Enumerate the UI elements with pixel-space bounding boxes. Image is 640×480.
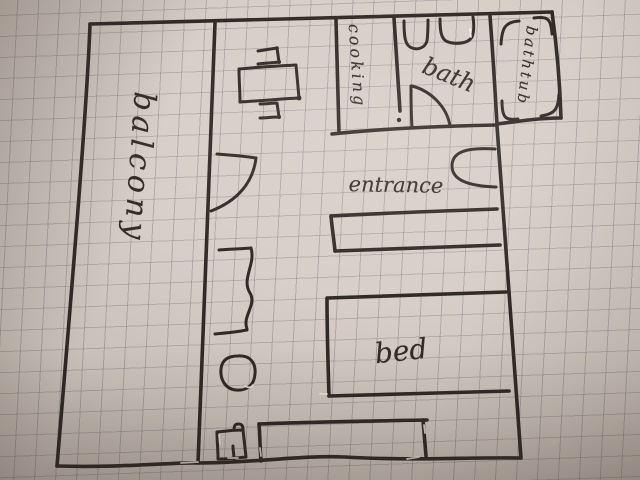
glint	[470, 29, 471, 37]
balcony-door-swing-arc	[211, 158, 256, 211]
glint	[260, 448, 261, 456]
small-square-tick	[233, 446, 234, 459]
floorplan-photo: balcony cooking bath bathtub entrance be…	[0, 0, 640, 480]
bed-left-wall	[327, 298, 329, 396]
label-entrance: entrance	[348, 172, 443, 198]
ink-blob	[277, 60, 281, 64]
bath-door-leaf	[411, 86, 412, 127]
sink-u-shape	[440, 17, 474, 43]
cooking-bath-divider	[394, 18, 400, 111]
top-wall	[90, 12, 552, 24]
balcony-door-leaf	[217, 154, 256, 158]
glint	[219, 435, 220, 444]
sink-u-shape	[404, 20, 428, 49]
lower-partition-wall	[259, 420, 427, 424]
cooking-left-wall	[336, 20, 339, 133]
entrance-closet-left	[331, 216, 335, 251]
label-bed: bed	[373, 332, 429, 370]
bathtub-corner-arc	[501, 21, 519, 44]
bottom-wall	[57, 457, 520, 467]
entrance-door-arc	[452, 149, 496, 187]
bed-bottom-wall	[329, 391, 509, 396]
floorplan-sketch	[0, 0, 640, 480]
ink-blob	[277, 115, 281, 119]
ink-blob	[297, 96, 302, 101]
desk-chair	[258, 48, 279, 64]
glint	[181, 462, 198, 463]
balcony-divider-wall	[198, 23, 215, 463]
left-wall	[57, 24, 90, 466]
wardrobe-wavy-side	[246, 248, 252, 329]
ink-blob	[275, 46, 279, 50]
glint	[424, 425, 425, 433]
stool-circle	[221, 356, 255, 390]
bath-bathtub-divider	[490, 16, 497, 124]
desk-table	[239, 65, 299, 102]
kitchen-row-bottom-wall	[332, 125, 497, 134]
bathtub-corner-arc	[541, 95, 559, 116]
small-square-outline	[217, 430, 246, 459]
bath-door-hinge-dot	[397, 118, 401, 122]
bed-top-wall	[328, 292, 506, 298]
bath-door-swing-arc	[412, 86, 450, 126]
desk-chair	[260, 103, 279, 118]
entrance-closet-bottom	[335, 245, 500, 251]
entrance-closet-top	[331, 209, 497, 216]
bathtub-right-wall	[552, 12, 561, 118]
wardrobe-top	[219, 248, 251, 250]
wardrobe-bottom	[215, 330, 247, 334]
